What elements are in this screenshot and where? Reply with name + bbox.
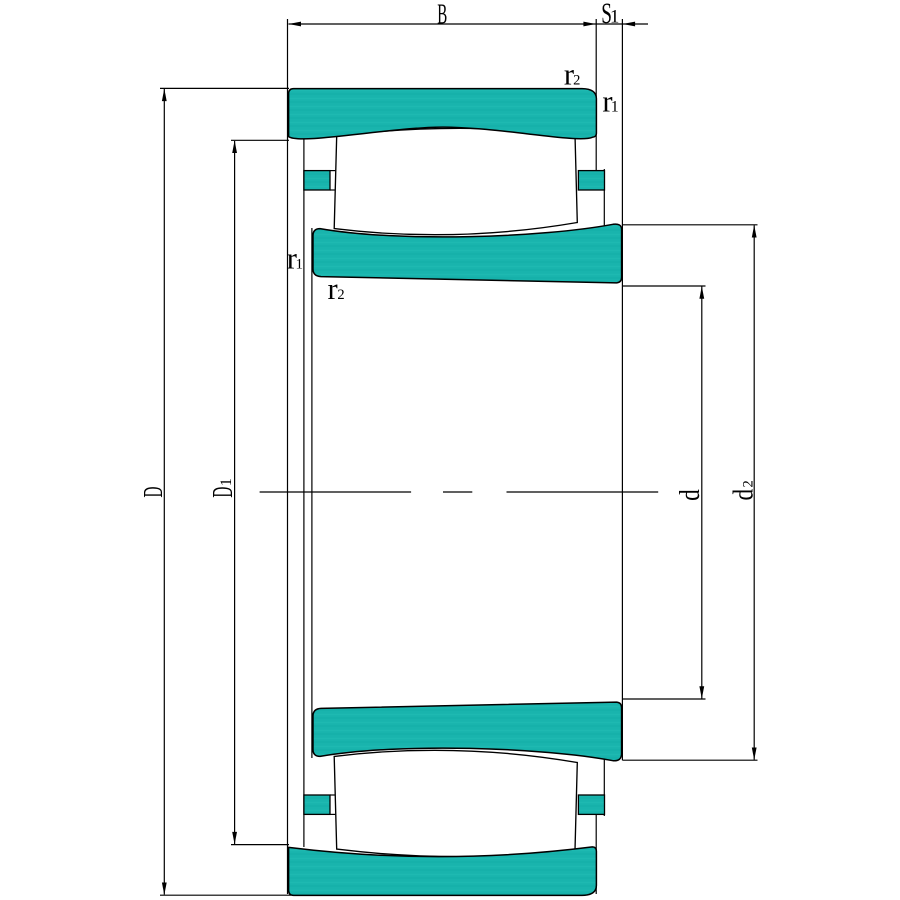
svg-text:d: d <box>674 489 706 501</box>
svg-text:1: 1 <box>218 478 235 486</box>
svg-text:1: 1 <box>611 99 619 116</box>
svg-text:1: 1 <box>295 256 303 272</box>
svg-text:d: d <box>727 489 759 501</box>
svg-text:D: D <box>137 487 168 498</box>
svg-text:B: B <box>437 0 447 31</box>
svg-text:1: 1 <box>610 7 620 28</box>
svg-text:2: 2 <box>573 72 580 88</box>
svg-text:D: D <box>208 487 239 498</box>
svg-text:2: 2 <box>740 480 756 487</box>
svg-text:2: 2 <box>337 287 344 303</box>
svg-text:r: r <box>328 272 338 306</box>
